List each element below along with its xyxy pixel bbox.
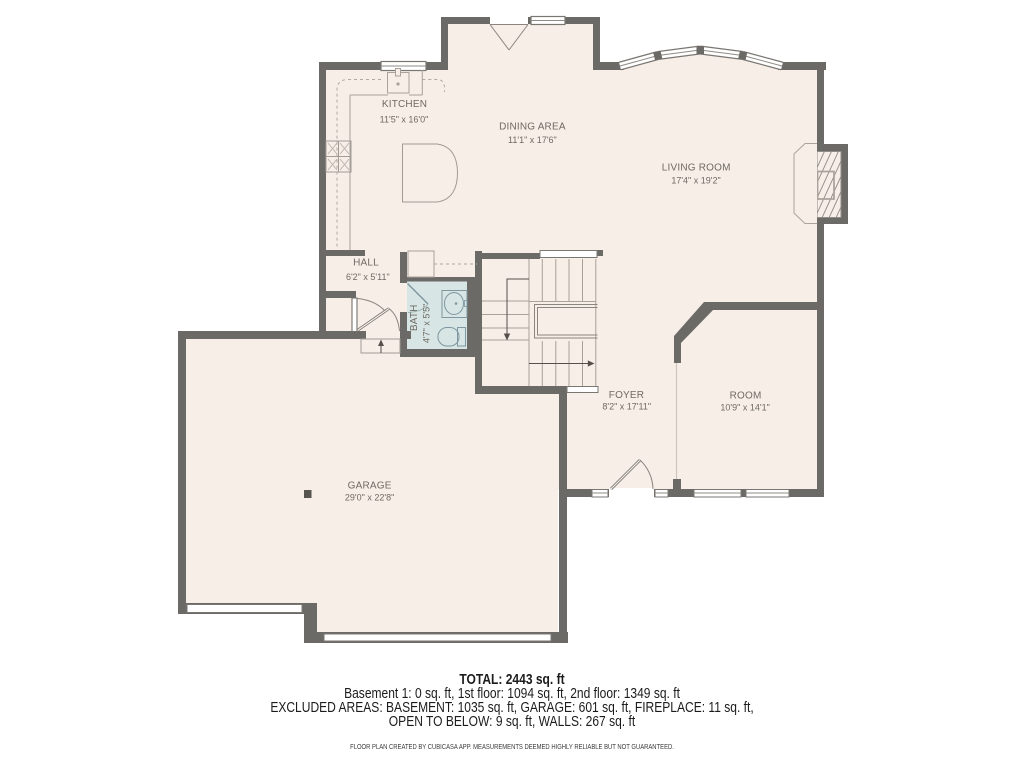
svg-text:BATH: BATH — [409, 304, 420, 331]
svg-text:GARAGE: GARAGE — [348, 480, 392, 491]
svg-text:8'2" x 17'11": 8'2" x 17'11" — [602, 402, 651, 412]
svg-text:10'9" x 14'1": 10'9" x 14'1" — [720, 402, 769, 412]
svg-text:DINING AREA: DINING AREA — [499, 122, 566, 133]
svg-text:ROOM: ROOM — [730, 391, 762, 402]
svg-text:4'7" x 5'5": 4'7" x 5'5" — [422, 304, 432, 343]
svg-text:17'4" x 19'2": 17'4" x 19'2" — [671, 175, 720, 185]
svg-text:LIVING ROOM: LIVING ROOM — [662, 162, 731, 173]
svg-text:29'0" x 22'8": 29'0" x 22'8" — [345, 493, 394, 503]
svg-text:HALL: HALL — [353, 258, 379, 269]
svg-text:FOYER: FOYER — [609, 390, 644, 401]
svg-text:11'5" x 16'0": 11'5" x 16'0" — [380, 115, 429, 125]
svg-text:11'1" x 17'6": 11'1" x 17'6" — [508, 135, 557, 145]
svg-text:KITCHEN: KITCHEN — [382, 99, 427, 110]
svg-text:6'2" x 5'11": 6'2" x 5'11" — [346, 272, 390, 282]
